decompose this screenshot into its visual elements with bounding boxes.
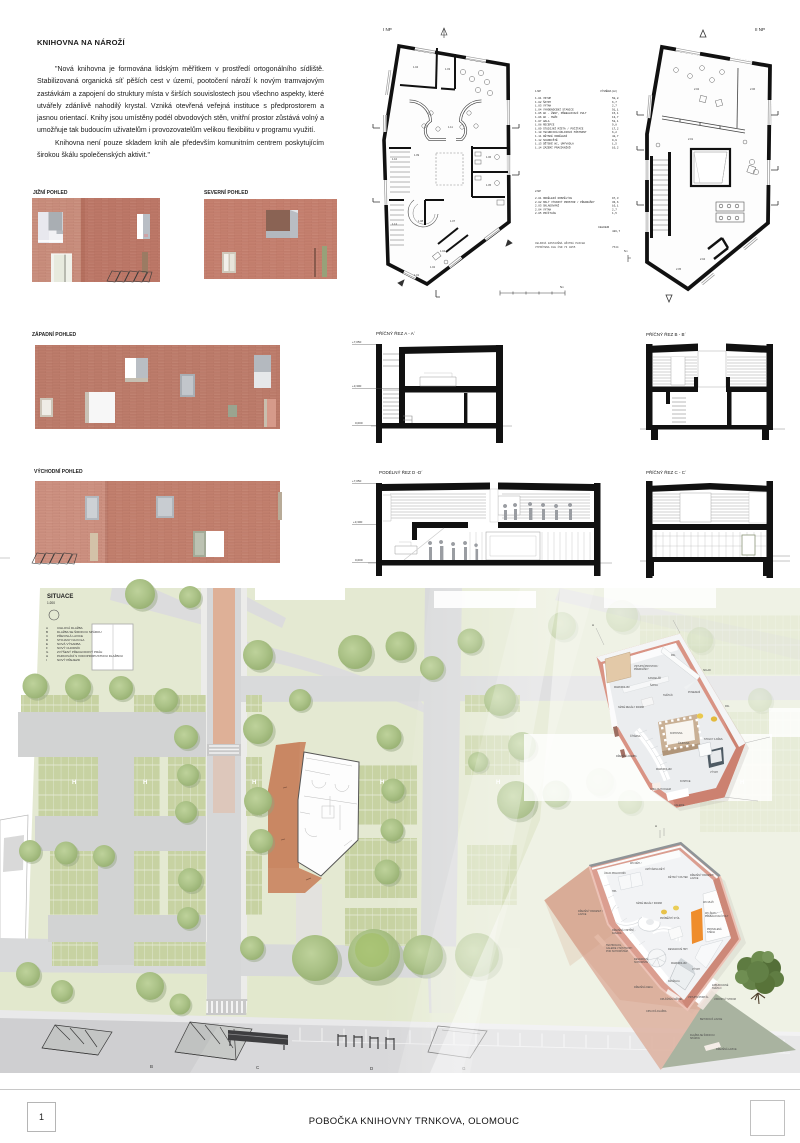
svg-text:NOVÝ PŘEJEZD: NOVÝ PŘEJEZD bbox=[57, 657, 81, 662]
svg-text:KRUŽILKA: KRUŽILKA bbox=[668, 980, 680, 983]
svg-text:VÝTAH: VÝTAH bbox=[710, 771, 718, 774]
svg-text:7544: 7544 bbox=[612, 246, 619, 249]
svg-text:A: A bbox=[655, 824, 657, 828]
svg-text:BETONOVÁ LAVICE: BETONOVÁ LAVICE bbox=[700, 1018, 723, 1021]
svg-text:MARKROLUM: MARKROLUM bbox=[656, 768, 672, 771]
svg-text:POSEZENÍ: POSEZENÍ bbox=[688, 691, 700, 694]
svg-text:SITUACE: SITUACE bbox=[47, 594, 73, 600]
svg-text:10,2: 10,2 bbox=[612, 146, 619, 149]
svg-text:ŠATNA: ŠATNA bbox=[650, 684, 658, 687]
svg-text:NÍZKÉ REGÁLY 900MM: NÍZKÉ REGÁLY 900MM bbox=[636, 902, 662, 905]
svg-text:1.10 TECHNICKÁ/ÚKLIDOVÁ MÍSTN: 1.10 TECHNICKÁ/ÚKLIDOVÁ MÍSTNOST bbox=[535, 130, 587, 134]
svg-text:2.04: 2.04 bbox=[700, 257, 706, 261]
svg-text:H: H bbox=[252, 780, 256, 786]
svg-text:A: A bbox=[592, 623, 594, 627]
svg-text:1.02: 1.02 bbox=[430, 265, 436, 269]
svg-text:PODÉLNÝ ŘEZ D -D´: PODÉLNÝ ŘEZ D -D´ bbox=[379, 468, 423, 475]
svg-text:II NP: II NP bbox=[755, 27, 765, 32]
svg-text:1.10: 1.10 bbox=[392, 157, 398, 161]
svg-text:15,1: 15,1 bbox=[612, 112, 619, 115]
svg-text:POD SCHODIŠTĚM: POD SCHODIŠTĚM bbox=[606, 950, 628, 953]
svg-text:1.05: 1.05 bbox=[486, 183, 492, 187]
svg-text:DŘEVĚNÁ DEKA: DŘEVĚNÁ DEKA bbox=[634, 986, 653, 989]
svg-text:ČAJOVNA: ČAJOVNA bbox=[678, 742, 690, 745]
svg-text:36,6: 36,6 bbox=[612, 201, 619, 204]
svg-text:1.01: 1.01 bbox=[414, 273, 420, 277]
svg-text:PŘÍČNÝ ŘEZ B - B´: PŘÍČNÝ ŘEZ B - B´ bbox=[646, 330, 687, 337]
svg-text:1.07: 1.07 bbox=[450, 219, 456, 223]
svg-text:1.02 ŠATNY: 1.02 ŠATNY bbox=[535, 100, 552, 104]
svg-text:1.05 WC - ŽENY, PŘEBALOVACÍ P: 1.05 WC - ŽENY, PŘEBALOVACÍ PULT bbox=[535, 111, 587, 115]
svg-text:PŘÍČNÝ ŘEZ A - A´: PŘÍČNÝ ŘEZ A - A´ bbox=[376, 329, 416, 336]
svg-text:1:200: 1:200 bbox=[47, 601, 55, 605]
svg-text:2.03 SKLADOVÁNÍ: 2.03 SKLADOVÁNÍ bbox=[535, 204, 560, 208]
svg-text:ZÁPADNÍ POHLED: ZÁPADNÍ POHLED bbox=[32, 330, 76, 338]
svg-text:1.06 WC - MUŽI: 1.06 WC - MUŽI bbox=[535, 115, 558, 119]
svg-text:+7,050: +7,050 bbox=[352, 340, 362, 344]
svg-text:1.06: 1.06 bbox=[486, 155, 492, 159]
svg-text:DŘEVĚNÁ RAMPA: DŘEVĚNÁ RAMPA bbox=[616, 755, 637, 758]
svg-text:DĚTSKÝ KOUTEK: DĚTSKÝ KOUTEK bbox=[668, 876, 688, 879]
svg-text:SEVERNÍ POHLED: SEVERNÍ POHLED bbox=[204, 188, 249, 196]
svg-text:426,7: 426,7 bbox=[612, 230, 620, 233]
svg-text:1.07 HALA: 1.07 HALA bbox=[535, 120, 550, 123]
svg-text:1.04 VYHODNOCENÍ STANICE: 1.04 VYHODNOCENÍ STANICE bbox=[535, 107, 574, 111]
svg-text:SVĚTLÍK: SVĚTLÍK bbox=[663, 694, 673, 697]
svg-text:UMÝVÁRNA DĚTÍ: UMÝVÁRNA DĚTÍ bbox=[645, 868, 665, 871]
svg-text:1,5: 1,5 bbox=[612, 212, 617, 215]
svg-text:VYPOČTENA DLE ČSN 73 4055: VYPOČTENA DLE ČSN 73 4055 bbox=[535, 245, 576, 249]
svg-text:DESIGNOVÉ HRY: DESIGNOVÉ HRY bbox=[668, 948, 688, 951]
svg-text:LAVICE: LAVICE bbox=[690, 877, 699, 880]
svg-text:ÚKLID.PRACOVNÍK: ÚKLID.PRACOVNÍK bbox=[604, 872, 626, 875]
svg-text:JIŽNÍ POHLED: JIŽNÍ POHLED bbox=[33, 188, 68, 196]
svg-text:9,9: 9,9 bbox=[612, 139, 617, 142]
svg-text:0,000: 0,000 bbox=[355, 558, 363, 562]
svg-text:2.01 ODDĚLENÍ DOSPĚLÝCH: 2.01 ODDĚLENÍ DOSPĚLÝCH bbox=[535, 196, 572, 200]
svg-text:1,5: 1,5 bbox=[612, 143, 617, 146]
svg-text:1.11 DĚTSKÉ ODDĚLENÍ: 1.11 DĚTSKÉ ODDĚLENÍ bbox=[535, 134, 568, 138]
svg-text:DŘEVĚNÁ LAVICE: DŘEVĚNÁ LAVICE bbox=[716, 1048, 737, 1051]
svg-text:FASÁDA: FASÁDA bbox=[612, 932, 622, 935]
svg-text:2,7: 2,7 bbox=[612, 208, 617, 211]
svg-text:5m: 5m bbox=[624, 249, 628, 253]
svg-text:52,1: 52,1 bbox=[612, 120, 619, 123]
svg-text:STĚNA: STĚNA bbox=[707, 931, 715, 934]
svg-text:MARKROLUM: MARKROLUM bbox=[614, 686, 630, 689]
svg-text:2.02 MALÝ VÝUKOVÝ PROSTOR / P: 2.02 MALÝ VÝUKOVÝ PROSTOR / PŘEDNÁŠKY bbox=[535, 200, 595, 204]
svg-text:2.NP: 2.NP bbox=[535, 189, 541, 193]
svg-text:ČÍTÁRNA: ČÍTÁRNA bbox=[630, 735, 641, 738]
svg-text:SKLAD: SKLAD bbox=[703, 669, 711, 672]
svg-text:VÝTAH: VÝTAH bbox=[692, 968, 700, 971]
svg-text:9,8: 9,8 bbox=[612, 124, 617, 127]
svg-text:HPL: HPL bbox=[612, 890, 617, 893]
svg-text:PŘÍČNÝ ŘEZ C - C´: PŘÍČNÝ ŘEZ C - C´ bbox=[646, 468, 687, 475]
svg-text:1.12 SCHODIŠTĚ: 1.12 SCHODIŠTĚ bbox=[535, 138, 558, 142]
svg-text:NÍZKÉ REGÁLY 900MM: NÍZKÉ REGÁLY 900MM bbox=[618, 706, 644, 709]
svg-text:I NP: I NP bbox=[383, 27, 392, 32]
svg-text:PŘEBALOVACÍ PULT: PŘEBALOVACÍ PULT bbox=[705, 915, 729, 918]
svg-text:10,1: 10,1 bbox=[612, 205, 619, 208]
svg-text:0,000: 0,000 bbox=[355, 421, 363, 425]
svg-text:17,2: 17,2 bbox=[612, 127, 619, 130]
svg-text:1.08: 1.08 bbox=[418, 219, 424, 223]
svg-text:2.05: 2.05 bbox=[676, 267, 682, 271]
svg-text:1.09: 1.09 bbox=[414, 153, 420, 157]
svg-text:CIHLOVÁ DLAŽBA: CIHLOVÁ DLAŽBA bbox=[646, 1010, 667, 1013]
svg-text:PŘEDNÁŠKY: PŘEDNÁŠKY bbox=[634, 668, 649, 671]
svg-text:+3,300: +3,300 bbox=[352, 384, 362, 388]
svg-text:6,2: 6,2 bbox=[612, 131, 617, 134]
svg-text:RFL: RFL bbox=[725, 705, 730, 708]
svg-text:2.04 VÝTAH: 2.04 VÝTAH bbox=[535, 207, 552, 211]
svg-text:RFL: RFL bbox=[671, 654, 676, 657]
svg-text:CELKEM: CELKEM bbox=[598, 225, 610, 229]
svg-text:42,7: 42,7 bbox=[612, 135, 619, 138]
svg-text:VSTUPNÍ PORTÁL: VSTUPNÍ PORTÁL bbox=[688, 996, 709, 999]
svg-text:CELKOVÁ ZASTAVĚNÁ UŽITNÁ PLOCH: CELKOVÁ ZASTAVĚNÁ UŽITNÁ PLOCHA bbox=[535, 241, 585, 245]
svg-text:SCHODIŠTĚ: SCHODIŠTĚ bbox=[634, 961, 648, 964]
svg-text:LAVICE: LAVICE bbox=[578, 913, 587, 916]
svg-text:6,7: 6,7 bbox=[612, 101, 617, 104]
svg-text:OPLÁŠTĚNÍ KŘÍDEL: OPLÁŠTĚNÍ KŘÍDEL bbox=[660, 998, 683, 1001]
svg-text:VZROSTLÝ STROM: VZROSTLÝ STROM bbox=[714, 998, 736, 1001]
svg-text:2.01: 2.01 bbox=[688, 137, 694, 141]
svg-text:B: B bbox=[150, 1064, 153, 1069]
svg-text:97,3: 97,3 bbox=[612, 197, 619, 200]
svg-text:13,7: 13,7 bbox=[612, 116, 619, 119]
svg-text:VÝCHODNÍ POHLED: VÝCHODNÍ POHLED bbox=[34, 467, 83, 475]
svg-text:2.05 POČÍTAČE: 2.05 POČÍTAČE bbox=[535, 211, 556, 215]
svg-text:KANCELÁŘ: KANCELÁŘ bbox=[648, 677, 661, 680]
svg-text:STOLKY A KŘES.: STOLKY A KŘES. bbox=[704, 738, 724, 741]
svg-text:2.06: 2.06 bbox=[750, 87, 756, 91]
svg-text:H: H bbox=[72, 780, 76, 786]
svg-text:KNIHOVNA: KNIHOVNA bbox=[670, 732, 683, 735]
svg-text:VÝMĚRA (m²): VÝMĚRA (m²) bbox=[600, 88, 617, 93]
svg-text:2.02: 2.02 bbox=[694, 87, 700, 91]
svg-text:KOSTICE: KOSTICE bbox=[680, 780, 691, 783]
svg-text:1.04: 1.04 bbox=[440, 249, 446, 253]
svg-text:1.03: 1.03 bbox=[445, 67, 451, 71]
svg-text:SVĚTLO: SVĚTLO bbox=[712, 987, 722, 990]
svg-text:WC DĚTI /: WC DĚTI / bbox=[630, 862, 642, 865]
svg-text:SPÁROU: SPÁROU bbox=[690, 1037, 700, 1040]
svg-text:H: H bbox=[143, 780, 147, 786]
svg-text:+3,300: +3,300 bbox=[353, 520, 363, 524]
svg-text:1.04: 1.04 bbox=[413, 65, 419, 69]
svg-text:GALERIE: GALERIE bbox=[674, 804, 685, 807]
svg-text:CHILLOUT KOLEM: CHILLOUT KOLEM bbox=[650, 788, 671, 791]
svg-text:PRŮBĚŽNÝ STŮL: PRŮBĚŽNÝ STŮL bbox=[660, 917, 680, 920]
svg-text:1.03 VÝTAH: 1.03 VÝTAH bbox=[535, 104, 552, 108]
svg-text:MARKROLUM: MARKROLUM bbox=[671, 962, 687, 965]
svg-text:1.12: 1.12 bbox=[392, 222, 398, 226]
svg-text:1.09 STUDIJNÍ MÍSTA / POČÍTAČ: 1.09 STUDIJNÍ MÍSTA / POČÍTAČE bbox=[535, 126, 584, 130]
svg-text:5m: 5m bbox=[560, 285, 565, 289]
svg-text:2,7: 2,7 bbox=[612, 105, 617, 108]
svg-text:WC MUŽI: WC MUŽI bbox=[703, 901, 714, 904]
svg-text:+7,050: +7,050 bbox=[352, 479, 362, 483]
svg-text:1.11: 1.11 bbox=[448, 125, 453, 129]
svg-text:1.NP: 1.NP bbox=[535, 89, 541, 93]
svg-text:1.08 RECEPCE: 1.08 RECEPCE bbox=[535, 124, 555, 127]
svg-text:1.13 DĚTSKÉ WC, UMÝVADLA: 1.13 DĚTSKÉ WC, UMÝVADLA bbox=[535, 142, 574, 146]
svg-text:1.01 VSTUP: 1.01 VSTUP bbox=[535, 97, 552, 100]
svg-text:50,8: 50,8 bbox=[612, 97, 619, 100]
svg-text:91,1: 91,1 bbox=[612, 108, 619, 111]
